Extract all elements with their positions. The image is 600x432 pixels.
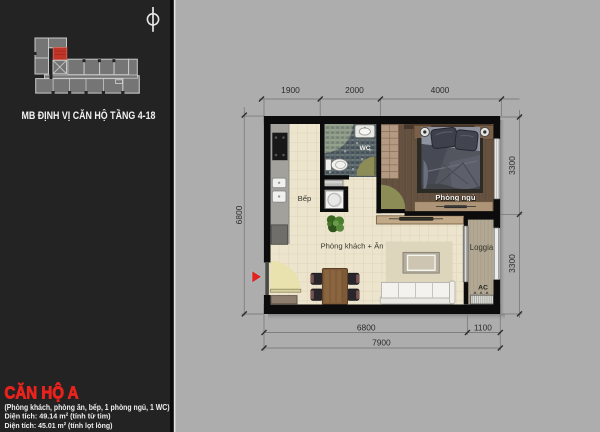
svg-text:Diện tích: 45.01 m² (tính lọt: Diện tích: 45.01 m² (tính lọt lòng) xyxy=(5,421,113,430)
svg-text:AC: AC xyxy=(478,285,488,292)
svg-text:2000: 2000 xyxy=(345,85,364,95)
svg-text:CĂN HỘ A: CĂN HỘ A xyxy=(5,382,79,403)
svg-text:Phòng khách + Ăn: Phòng khách + Ăn xyxy=(320,242,383,251)
svg-text:(Phòng khách, phòng ăn, bếp, 1: (Phòng khách, phòng ăn, bếp, 1 phòng ngủ… xyxy=(5,403,170,412)
svg-text:7900: 7900 xyxy=(372,338,391,348)
svg-text:Loggia: Loggia xyxy=(470,243,494,252)
svg-text:WC: WC xyxy=(360,145,371,152)
svg-text:Phòng ngủ: Phòng ngủ xyxy=(435,193,475,202)
svg-text:Bếp: Bếp xyxy=(298,194,312,203)
svg-text:4000: 4000 xyxy=(431,85,450,95)
svg-text:1900: 1900 xyxy=(281,85,300,95)
svg-text:MB ĐỊNH VỊ CĂN HỘ TẦNG 4-18: MB ĐỊNH VỊ CĂN HỘ TẦNG 4-18 xyxy=(22,109,156,122)
svg-text:3300: 3300 xyxy=(507,156,517,175)
svg-text:6800: 6800 xyxy=(357,322,376,332)
svg-text:1100: 1100 xyxy=(474,322,492,332)
svg-text:3300: 3300 xyxy=(507,254,517,273)
svg-text:Diện tích: 49.14 m² (tính từ t: Diện tích: 49.14 m² (tính từ tim) xyxy=(5,412,111,421)
svg-text:6800: 6800 xyxy=(234,205,244,224)
